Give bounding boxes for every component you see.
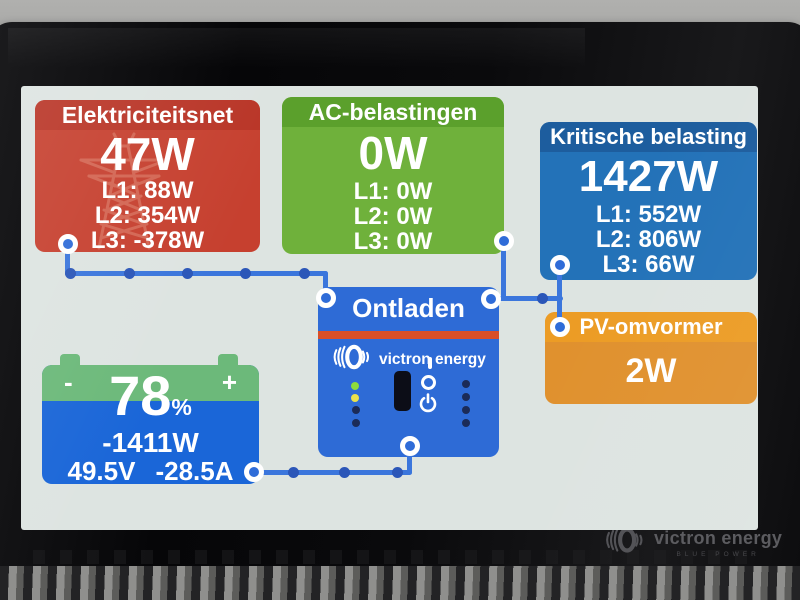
- inverter-panel[interactable]: Ontladen victron energy: [318, 287, 499, 457]
- victron-torus-icon: [330, 342, 374, 377]
- flow-dot: [288, 467, 299, 478]
- photo-scene: victron energy BLUE POWER: [0, 0, 800, 600]
- grid-total-power: 47W: [35, 130, 260, 178]
- flow-dot: [240, 268, 251, 279]
- led-inverting: [351, 394, 359, 402]
- critical-loads-title: Kritische belasting: [540, 122, 757, 152]
- inverter-orange-stripe: [318, 331, 499, 339]
- node-inverter-dc: [400, 436, 420, 456]
- grid-l2: L2: 354W: [35, 203, 260, 228]
- grid-panel[interactable]: Elektriciteitsnet 47W L1: 88W L2: 354W L…: [35, 100, 260, 252]
- node-critical-loads: [550, 255, 570, 275]
- node-battery: [244, 462, 264, 482]
- gx-touch-display-bezel: victron energy BLUE POWER: [0, 22, 800, 572]
- battery-soc-unit: %: [171, 394, 191, 420]
- switch-off-icon: [421, 375, 436, 390]
- pv-inverter-title: PV-omvormer: [545, 312, 757, 342]
- led-off-5: [462, 406, 470, 414]
- power-symbol-icon: [418, 393, 438, 418]
- flow-dot: [392, 467, 403, 478]
- gx-touchscreen: Elektriciteitsnet 47W L1: 88W L2: 354W L…: [21, 86, 758, 530]
- radiator-fins: [0, 566, 800, 600]
- critical-loads-panel[interactable]: Kritische belasting 1427W L1: 552W L2: 8…: [540, 122, 757, 280]
- battery-power: -1411W: [42, 427, 259, 459]
- ac-loads-l3: L3: 0W: [282, 229, 504, 254]
- battery-voltage: 49.5V: [68, 456, 136, 487]
- node-inverter-acin: [316, 288, 336, 308]
- ac-loads-panel[interactable]: AC-belastingen 0W L1: 0W L2: 0W L3: 0W: [282, 97, 504, 254]
- wire-grid-horizontal: [65, 271, 328, 276]
- node-inverter-acout: [481, 289, 501, 309]
- inverter-state-title: Ontladen: [318, 293, 499, 323]
- led-off-1: [352, 406, 360, 414]
- node-grid: [58, 234, 78, 254]
- battery-current: -28.5A: [155, 456, 233, 487]
- wire-battery-horizontal: [254, 470, 412, 475]
- flow-dot: [537, 293, 548, 304]
- critical-loads-l1: L1: 552W: [540, 202, 757, 227]
- node-pv-inverter: [550, 317, 570, 337]
- led-off-6: [462, 419, 470, 427]
- pv-inverter-power: 2W: [545, 342, 757, 400]
- led-off-2: [352, 419, 360, 427]
- flow-dot: [339, 467, 350, 478]
- led-off-3: [462, 380, 470, 388]
- pv-inverter-panel[interactable]: PV-omvormer 2W: [545, 312, 757, 404]
- battery-soc-value: 78: [109, 364, 171, 427]
- switch-on-icon: [428, 357, 432, 369]
- flow-dot: [182, 268, 193, 279]
- flow-dot: [124, 268, 135, 279]
- battery-panel[interactable]: - + 78% -1411W 49.5V -28.5A: [42, 365, 259, 484]
- bezel-brand-tagline: BLUE POWER: [676, 551, 759, 558]
- inverter-brand-label: victron energy: [379, 351, 486, 369]
- grid-l1: L1: 88W: [35, 178, 260, 203]
- wire-inverter-out: [491, 296, 563, 301]
- node-acloads: [494, 231, 514, 251]
- battery-soc: 78%: [42, 367, 259, 425]
- critical-loads-total-power: 1427W: [540, 152, 757, 202]
- critical-loads-l2: L2: 806W: [540, 227, 757, 252]
- led-mains-on: [351, 382, 359, 390]
- inverter-display-window: [394, 371, 411, 411]
- bezel-brand-name: victron energy: [654, 528, 782, 549]
- ac-loads-l1: L1: 0W: [282, 179, 504, 204]
- flow-dot: [299, 268, 310, 279]
- led-off-4: [462, 393, 470, 401]
- flow-dot: [65, 268, 76, 279]
- grid-panel-title: Elektriciteitsnet: [35, 100, 260, 130]
- ac-loads-total-power: 0W: [282, 127, 504, 179]
- critical-loads-l3: L3: 66W: [540, 252, 757, 277]
- ac-loads-title: AC-belastingen: [282, 97, 504, 127]
- ac-loads-l2: L2: 0W: [282, 204, 504, 229]
